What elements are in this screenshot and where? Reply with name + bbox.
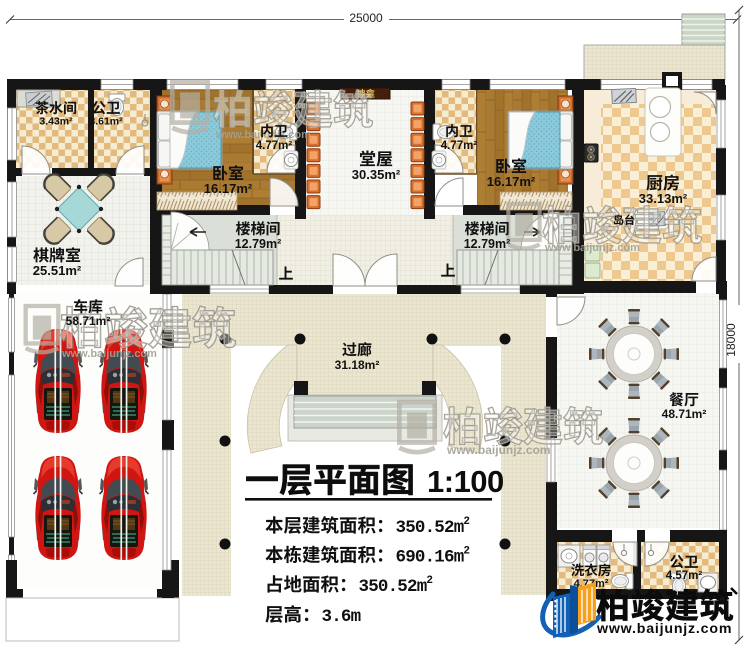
svg-text:690.16m: 690.16m [396,548,464,568]
svg-text:16.17m²: 16.17m² [204,181,253,196]
svg-text:4.57m²: 4.57m² [666,570,703,582]
svg-text:350.52m: 350.52m [359,577,427,597]
svg-text:4.77m²: 4.77m² [256,140,293,152]
svg-text:3.43m²: 3.43m² [39,116,73,128]
svg-text:12.79m²: 12.79m² [464,237,511,251]
svg-text:48.71m²: 48.71m² [662,407,707,421]
svg-text:4.77m²: 4.77m² [441,140,478,152]
svg-text:25.51m²: 25.51m² [33,263,82,278]
svg-text:350.52m: 350.52m [396,518,464,538]
svg-text:58.71m²: 58.71m² [66,314,111,328]
svg-text:30.35m²: 30.35m² [352,167,401,182]
svg-text:www.baijunjz.com: www.baijunjz.com [61,348,157,360]
svg-text:www.baijunjz.com: www.baijunjz.com [596,621,732,637]
svg-text:2: 2 [463,516,470,528]
svg-text:3.6m: 3.6m [322,607,361,627]
svg-text:www.baijunjz.com: www.baijunjz.com [544,242,640,254]
svg-text:16.17m²: 16.17m² [487,174,536,189]
svg-text:33.13m²: 33.13m² [639,191,688,206]
svg-text:31.18m²: 31.18m² [335,358,380,372]
svg-text:2: 2 [426,575,433,587]
svg-text:www.baijunjz.com: www.baijunjz.com [446,443,551,457]
svg-text:12.79m²: 12.79m² [235,237,282,251]
svg-text:1:100: 1:100 [427,464,504,499]
svg-text:3.61m²: 3.61m² [89,116,123,128]
svg-text:25000: 25000 [349,11,383,25]
svg-text:2: 2 [463,546,470,558]
